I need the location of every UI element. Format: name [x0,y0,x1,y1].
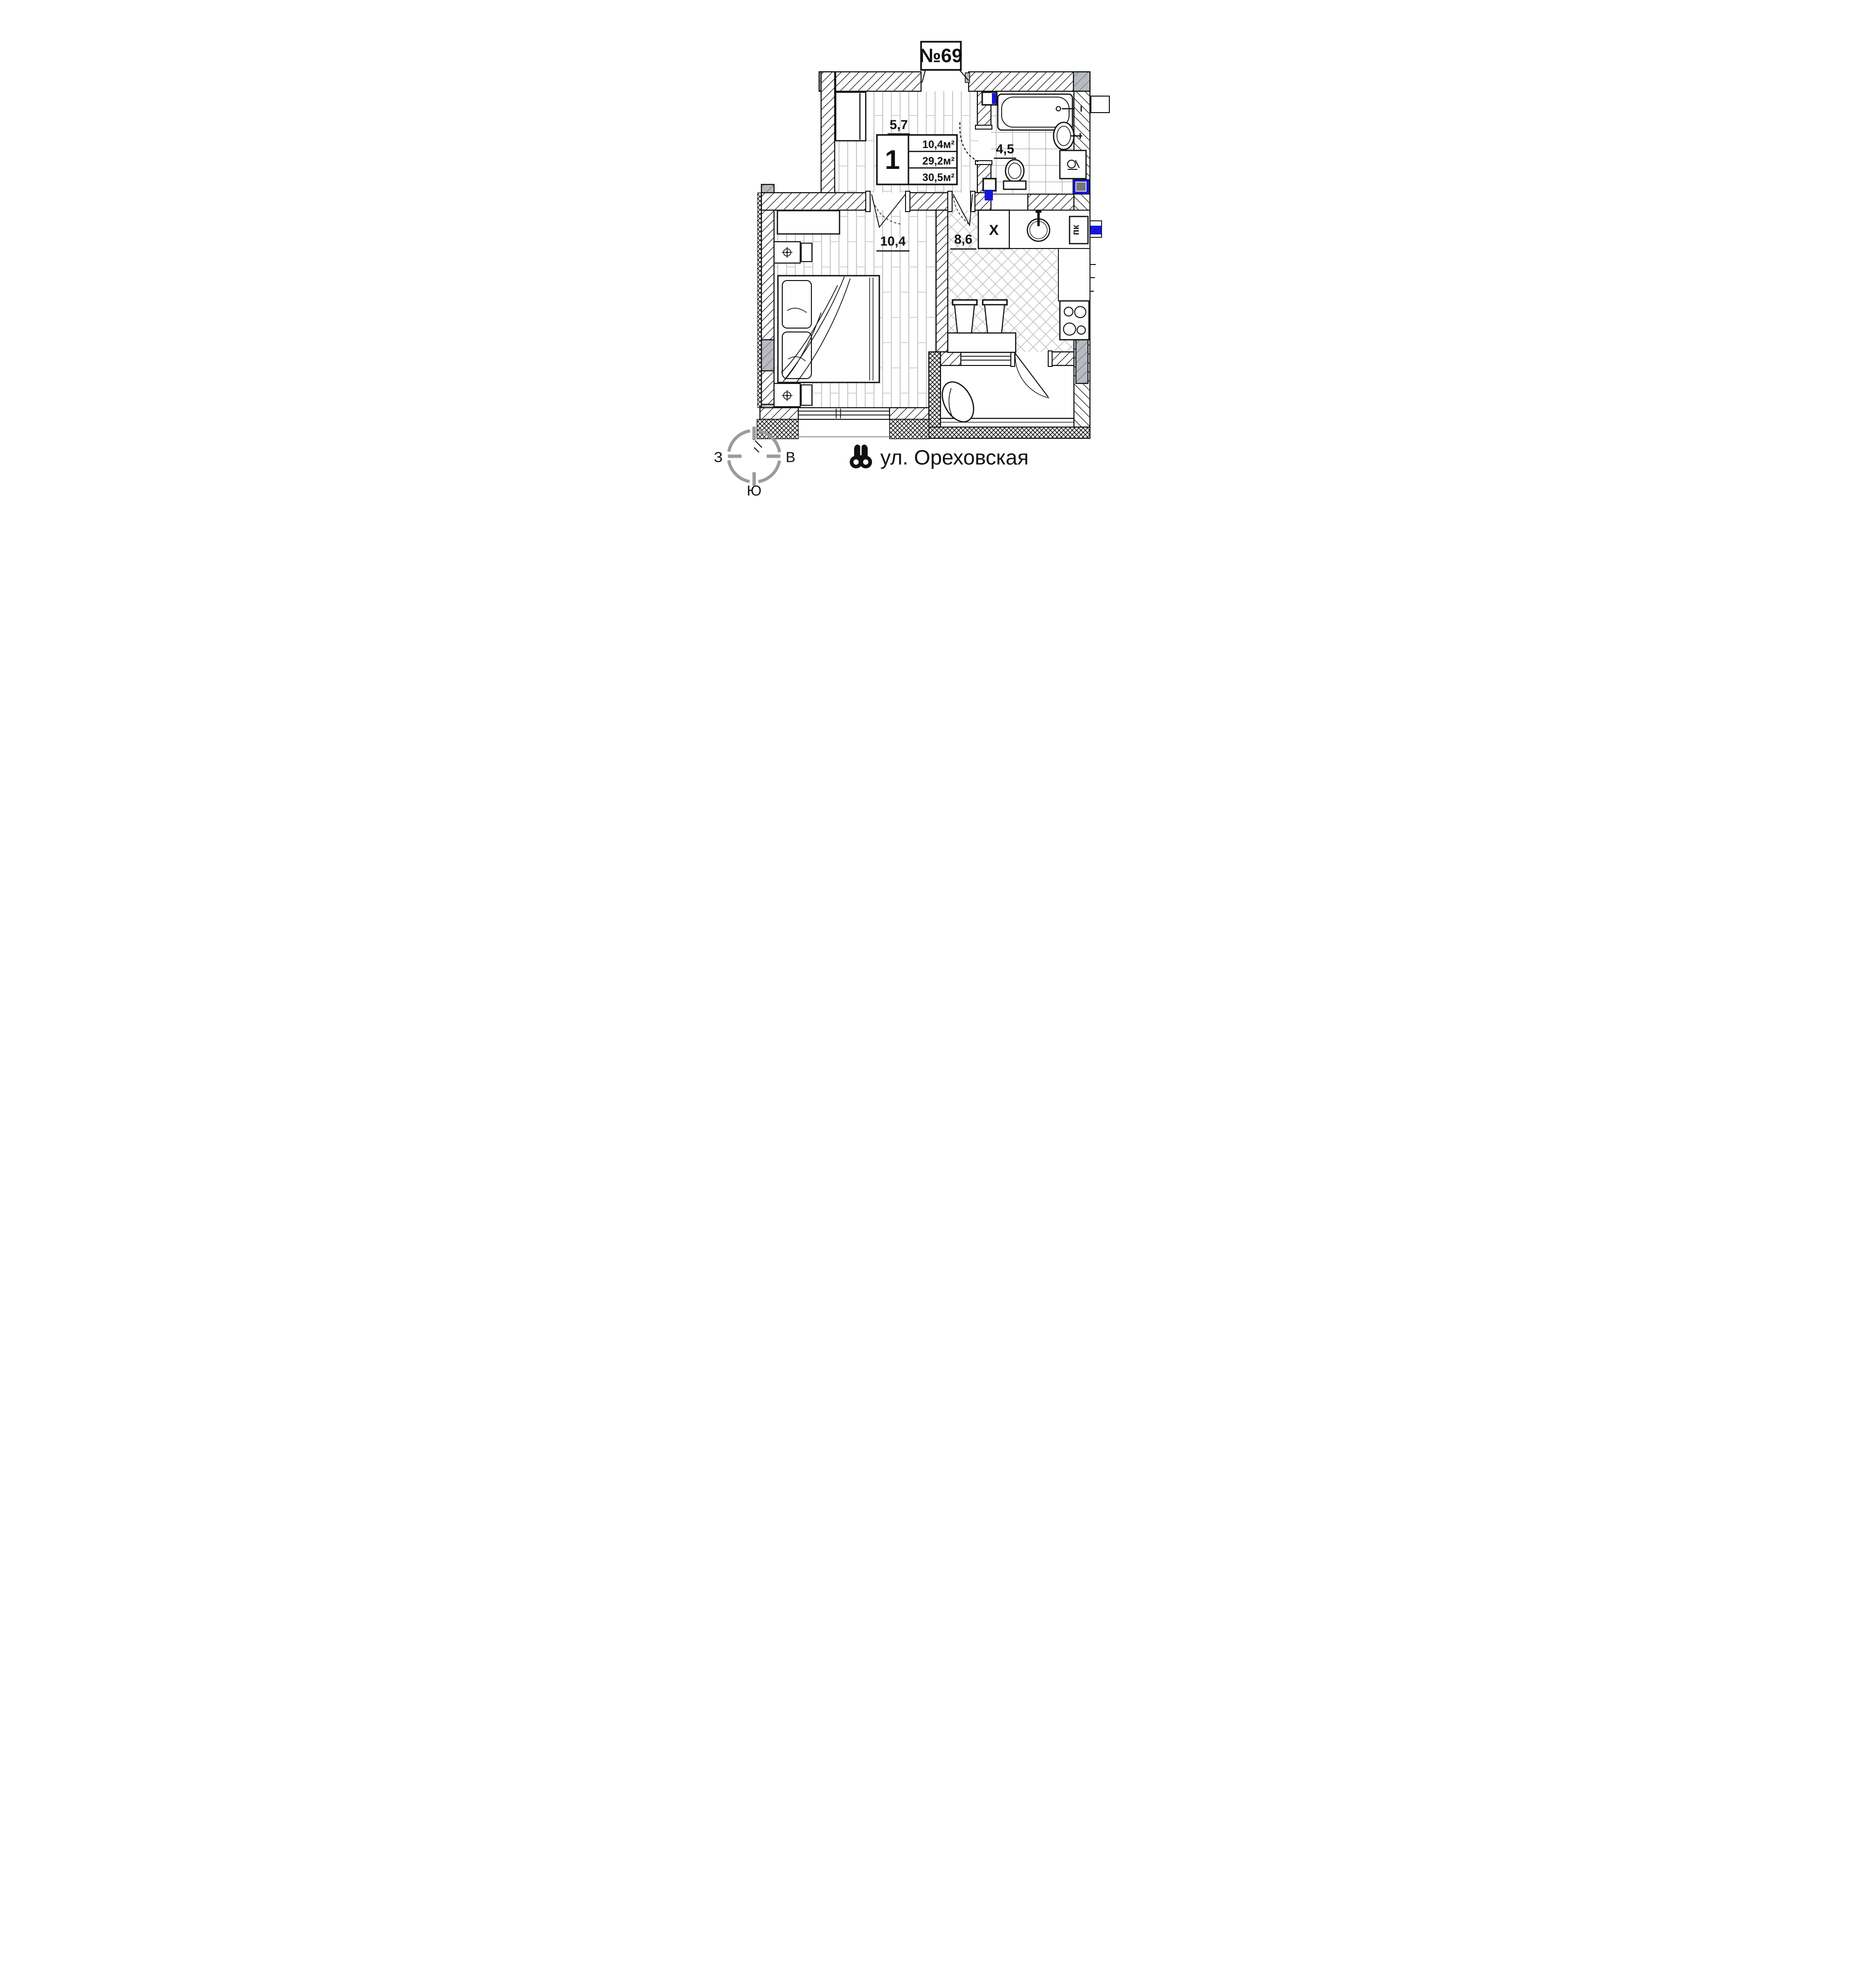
living-area-label: 10,4м² [922,138,954,150]
stove [1060,301,1089,340]
left-wall-insulation [758,193,761,408]
binoculars-lens-right-glass [863,460,868,465]
floor-plan-canvas: X пк [699,0,1165,497]
lamp-1-dot [786,251,788,253]
bottom-wall-right [890,408,929,419]
total-area-label: 30,5м² [922,171,954,183]
door-row-wall-b [907,193,952,210]
door-row-wall-a [761,193,870,210]
chair-1-back [953,300,977,305]
gray-block-right [1076,337,1088,383]
bottom-wall-left [760,408,798,419]
leader-line-left [922,70,925,83]
floor-plan-page: X пк [699,0,1165,497]
kitchen-window [961,352,1014,365]
chair-2-back [983,300,1007,305]
binoculars-hinge-gap [860,447,861,455]
info-box: 1 10,4м² 29,2м² 30,5м² [877,135,957,184]
riser-blue-bath-top [992,93,996,104]
kitchen-bottom-wall-right [1050,352,1074,365]
street-label-group: ул. Ореховская [850,445,1029,469]
binoculars-icon [850,445,872,468]
compass-south-label: Ю [746,483,761,497]
right-wall-ticks [1090,265,1096,291]
hall [836,92,866,141]
nightstand-1-side [801,243,812,262]
bottom-insulation-left [757,419,798,439]
kitchen-counter-column [1058,248,1090,301]
binoculars-lens-left-glass [853,460,858,465]
rooms-count-label: 1 [885,144,900,175]
upper-left-wall [821,72,835,210]
ground-marks [754,441,762,452]
bedroom-door-jamb-left [866,191,870,212]
bathroom-bottom-wall [1028,194,1074,210]
hall2-door-jamb-left [948,191,952,212]
bedroom-kitchen-partition [936,210,948,352]
exterior-shaft-top [1091,96,1109,113]
balcony-bottom-wall [929,427,1090,438]
street-name-label: ул. Ореховская [880,446,1029,469]
bath-door-jamb-top [975,125,992,129]
binoculars-hinge [859,455,862,458]
nightstand-2-side [801,385,812,405]
bottom-insulation-right [890,419,929,439]
gray-block-left-mid [761,340,774,371]
compass-east-label: В [785,449,795,465]
balcony-left-wall [929,352,940,438]
chair-1-seat [955,305,974,333]
riser-box-bath-bottom [983,179,996,191]
bedroom-area-label: 10,4 [880,234,906,248]
hall-area-label: 5,7 [890,117,908,132]
bathroom-area-label: 4,5 [996,142,1014,156]
pillow-1 [782,281,811,328]
bedroom-door-jamb-right [906,191,910,212]
unit-number-label: №69 [919,45,962,66]
bedroom-window [798,408,890,419]
pillow-2 [782,332,811,379]
kitchen-vent-label: X [989,222,998,238]
apartment-area-label: 29,2м² [922,155,954,167]
compass-west-label: З [713,449,722,465]
gray-block-top-right [1073,72,1090,91]
nightstand-2 [774,383,812,407]
top-wall-right [969,72,1090,91]
lamp-2-dot [786,395,788,397]
nightstand-1 [774,242,812,263]
washing-machine [1060,150,1086,179]
hall-closet [836,92,866,141]
left-wall [761,193,774,408]
kitchen-stove-note-label: пк [1071,225,1081,235]
toilet-tank [1004,181,1026,189]
balcony-door-jamb-left [1011,351,1015,366]
wardrobe [777,211,840,234]
balcony-door-jamb-right [1048,351,1052,366]
table [948,333,1016,352]
kitchen-area-label: 8,6 [954,232,973,247]
riser-blue-bath-bottom [985,190,993,200]
binoculars-eyepiece-left [854,445,861,453]
binoculars-eyepiece-right [861,445,868,453]
chair-2-seat [985,305,1005,333]
riser-gray-bath-right [1076,182,1086,191]
